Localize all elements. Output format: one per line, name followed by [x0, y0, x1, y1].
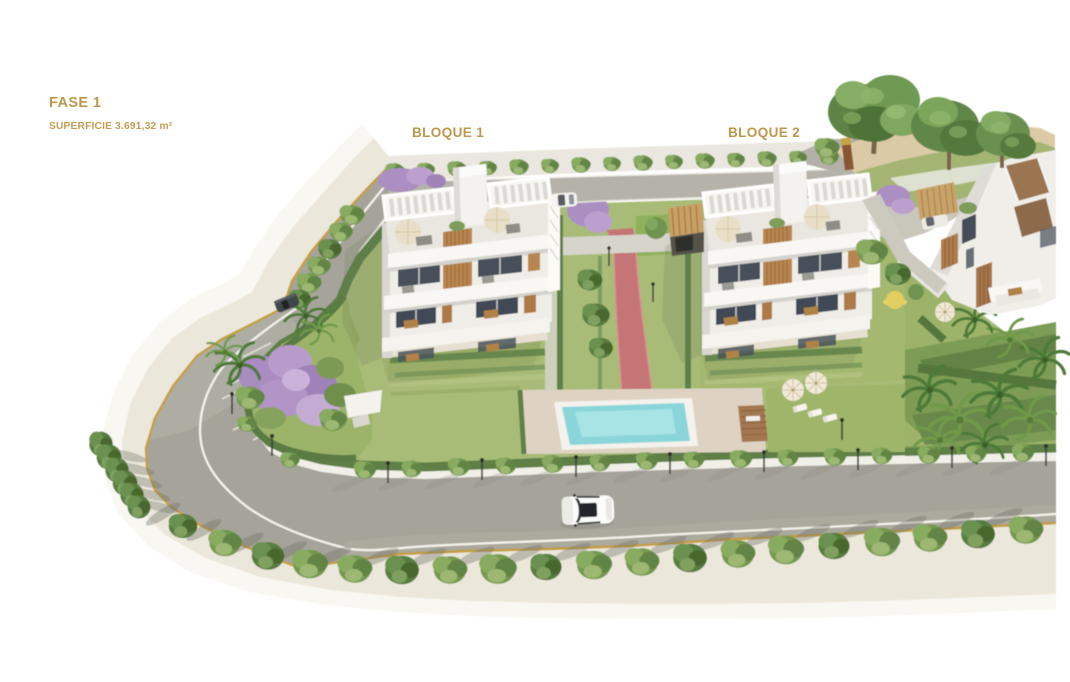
svg-text:BLOQUE 2: BLOQUE 2 [728, 125, 800, 140]
svg-text:FASE 1: FASE 1 [49, 95, 101, 111]
svg-text:BLOQUE 1: BLOQUE 1 [412, 125, 484, 140]
svg-text:SUPERFICIE 3.691,32 m²: SUPERFICIE 3.691,32 m² [49, 121, 173, 132]
